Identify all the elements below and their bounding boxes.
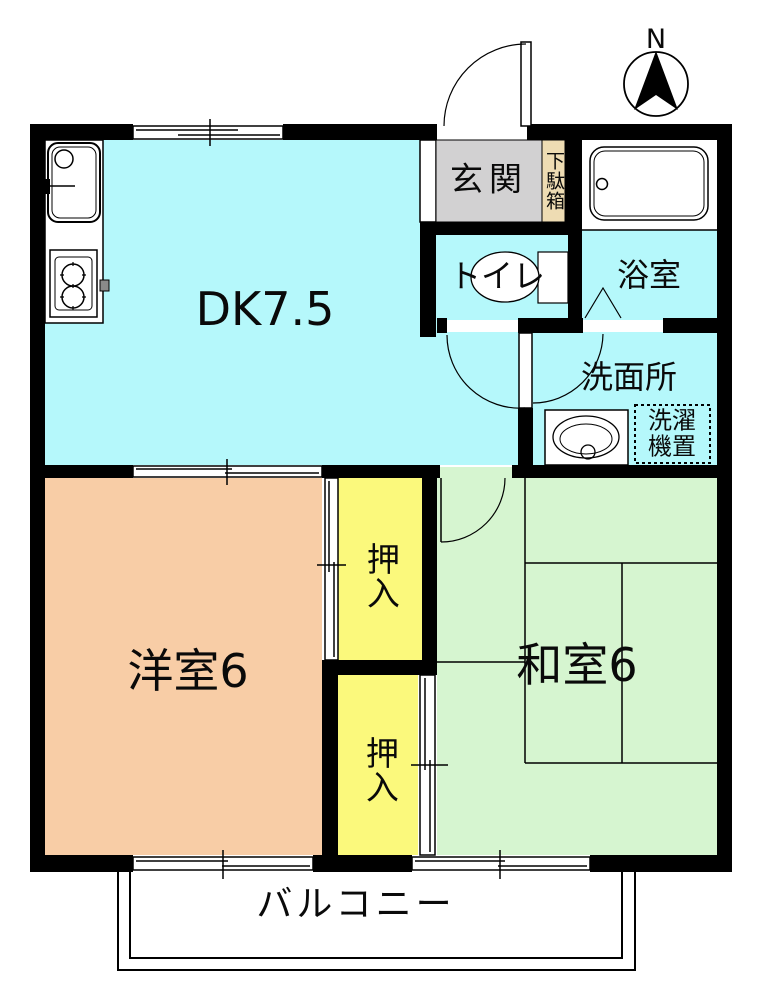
- wall: [518, 408, 533, 465]
- balcony-label: バルコニー: [256, 886, 455, 924]
- wall: [565, 140, 582, 235]
- bathtub-icon: [590, 147, 708, 220]
- wall: [30, 124, 133, 140]
- wall: [437, 318, 447, 333]
- washing-machine-space-line2: 機置: [648, 433, 696, 461]
- washroom-label: 洗面所: [581, 361, 677, 395]
- wall: [527, 124, 732, 140]
- wall: [663, 318, 717, 333]
- wall: [420, 222, 568, 235]
- washing-machine-space-line1: 洗濯: [648, 407, 696, 435]
- wall: [590, 855, 732, 872]
- dk-room-label: DK7.5: [196, 285, 335, 333]
- wall: [283, 124, 437, 140]
- wall: [518, 318, 583, 333]
- floor-plan-drawing: [0, 0, 757, 991]
- wall: [717, 124, 732, 872]
- kitchen-sink-icon: [38, 143, 100, 222]
- wall: [30, 855, 133, 872]
- entrance-label: 玄関: [450, 163, 528, 198]
- wall: [322, 660, 338, 855]
- toilet-label: トイレ: [449, 260, 545, 294]
- wall: [30, 124, 45, 872]
- compass-icon: [624, 51, 688, 116]
- bathroom-label: 浴室: [617, 259, 681, 293]
- shoe-cabinet-label: 下駄箱: [543, 151, 563, 211]
- washing-machine-space-label: 洗濯 機置: [648, 408, 696, 461]
- compass-north-label: N: [646, 26, 666, 54]
- japanese-room-label: 和室6: [516, 641, 637, 689]
- entrance-step: [420, 140, 436, 222]
- wall: [512, 465, 732, 478]
- wall: [322, 660, 437, 675]
- washbasin-icon: [545, 410, 628, 465]
- floor-plan: DK7.5 玄関 下駄箱 浴室 トイレ 洗面所 洗濯 機置 洋室6 和室6 押入…: [0, 0, 757, 991]
- wall: [422, 465, 437, 675]
- wall: [313, 855, 412, 872]
- western-room-label: 洋室6: [127, 647, 248, 695]
- closet-lower-label: 押入: [362, 736, 397, 804]
- wall: [45, 465, 133, 478]
- wall: [420, 235, 436, 337]
- entrance-door: [437, 42, 531, 139]
- closet-upper-label: 押入: [363, 542, 398, 610]
- door-swing-arc: [444, 44, 526, 126]
